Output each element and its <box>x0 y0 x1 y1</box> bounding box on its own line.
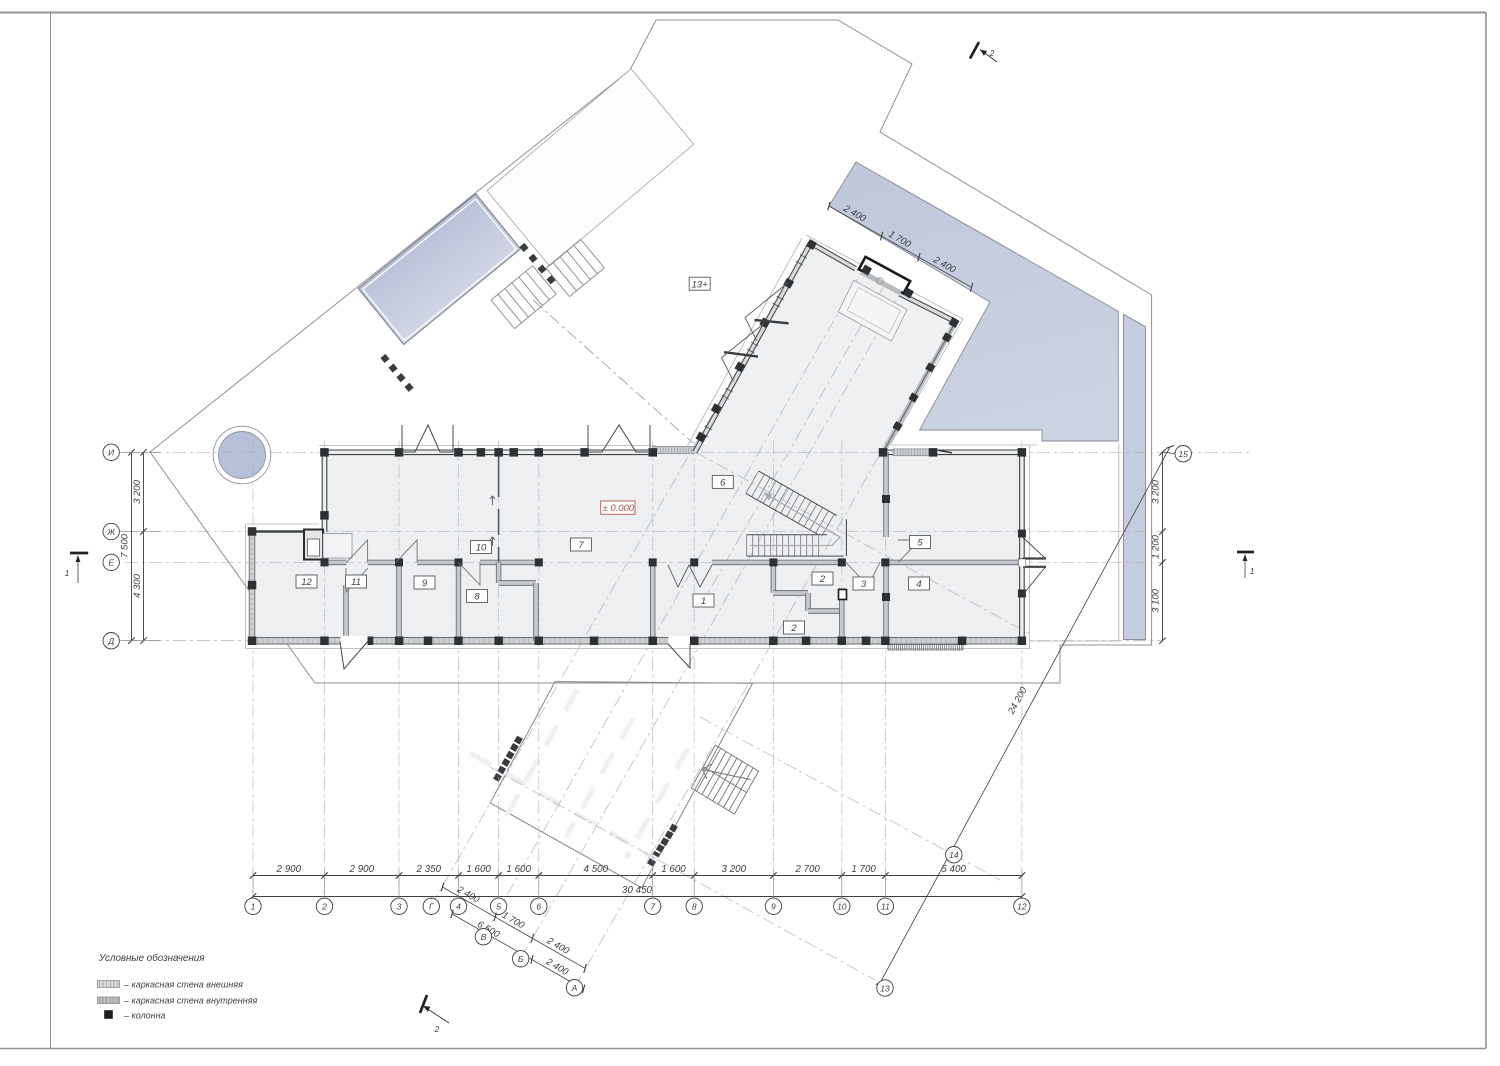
svg-text:– колонна: – колонна <box>123 1011 166 1021</box>
svg-text:10: 10 <box>837 902 847 912</box>
svg-text:Условные обозначения: Условные обозначения <box>98 953 205 964</box>
svg-text:3 200: 3 200 <box>1151 479 1162 503</box>
svg-text:1: 1 <box>1250 566 1255 576</box>
svg-text:1 200: 1 200 <box>1151 534 1162 558</box>
svg-text:1 600: 1 600 <box>661 864 686 875</box>
svg-text:1 700: 1 700 <box>851 864 876 875</box>
svg-text:13+: 13+ <box>692 279 709 290</box>
svg-text:11: 11 <box>881 902 890 912</box>
svg-text:4: 4 <box>916 579 921 590</box>
svg-text:2: 2 <box>321 902 327 912</box>
svg-text:4: 4 <box>456 902 461 912</box>
svg-text:Д: Д <box>107 636 114 646</box>
svg-text:7 500: 7 500 <box>120 533 131 557</box>
svg-text:3: 3 <box>397 902 402 912</box>
svg-text:15: 15 <box>1178 449 1188 459</box>
svg-text:– каркасная стена внутренняя: – каркасная стена внутренняя <box>123 996 258 1006</box>
svg-text:7: 7 <box>578 540 584 551</box>
svg-text:А: А <box>571 983 578 993</box>
svg-text:3 100: 3 100 <box>1151 588 1162 612</box>
svg-text:5: 5 <box>496 902 501 912</box>
svg-text:1 600: 1 600 <box>466 864 491 875</box>
svg-text:И: И <box>108 448 115 458</box>
svg-text:2 350: 2 350 <box>416 864 442 875</box>
svg-text:2: 2 <box>819 574 826 585</box>
svg-text:Е: Е <box>108 558 114 568</box>
svg-text:12: 12 <box>1017 902 1027 912</box>
svg-text:2: 2 <box>434 1024 440 1034</box>
svg-text:14: 14 <box>949 850 959 860</box>
svg-text:5 400: 5 400 <box>941 864 966 875</box>
svg-text:7: 7 <box>650 902 655 912</box>
svg-text:± 0.000: ± 0.000 <box>602 503 634 514</box>
svg-text:2 900: 2 900 <box>349 864 375 875</box>
svg-text:6: 6 <box>720 478 726 489</box>
svg-text:1: 1 <box>65 568 70 578</box>
svg-text:4 300: 4 300 <box>132 573 143 597</box>
svg-text:2: 2 <box>790 623 797 634</box>
svg-text:11: 11 <box>351 577 361 588</box>
svg-text:– каркасная стена внешняя: – каркасная стена внешняя <box>123 980 243 990</box>
svg-text:10: 10 <box>476 543 487 554</box>
svg-text:12: 12 <box>301 577 312 588</box>
svg-text:4 500: 4 500 <box>584 864 609 875</box>
svg-text:9: 9 <box>771 902 776 912</box>
svg-text:3: 3 <box>861 579 867 590</box>
svg-text:2: 2 <box>989 48 995 58</box>
svg-text:1: 1 <box>251 902 256 912</box>
svg-text:Б: Б <box>518 954 524 964</box>
svg-text:В: В <box>481 932 487 942</box>
svg-text:9: 9 <box>422 578 428 589</box>
svg-text:5: 5 <box>917 538 923 549</box>
svg-text:1 600: 1 600 <box>506 864 531 875</box>
svg-text:Ж: Ж <box>106 527 116 537</box>
svg-text:8: 8 <box>692 902 697 912</box>
svg-text:8: 8 <box>474 592 480 603</box>
svg-text:1: 1 <box>701 596 706 607</box>
svg-text:13: 13 <box>880 984 890 994</box>
svg-text:30 450: 30 450 <box>622 885 653 896</box>
svg-text:3 200: 3 200 <box>722 864 747 875</box>
svg-text:2 900: 2 900 <box>276 864 302 875</box>
svg-text:2 700: 2 700 <box>794 864 820 875</box>
svg-text:3 200: 3 200 <box>132 479 143 503</box>
svg-text:6: 6 <box>536 902 541 912</box>
